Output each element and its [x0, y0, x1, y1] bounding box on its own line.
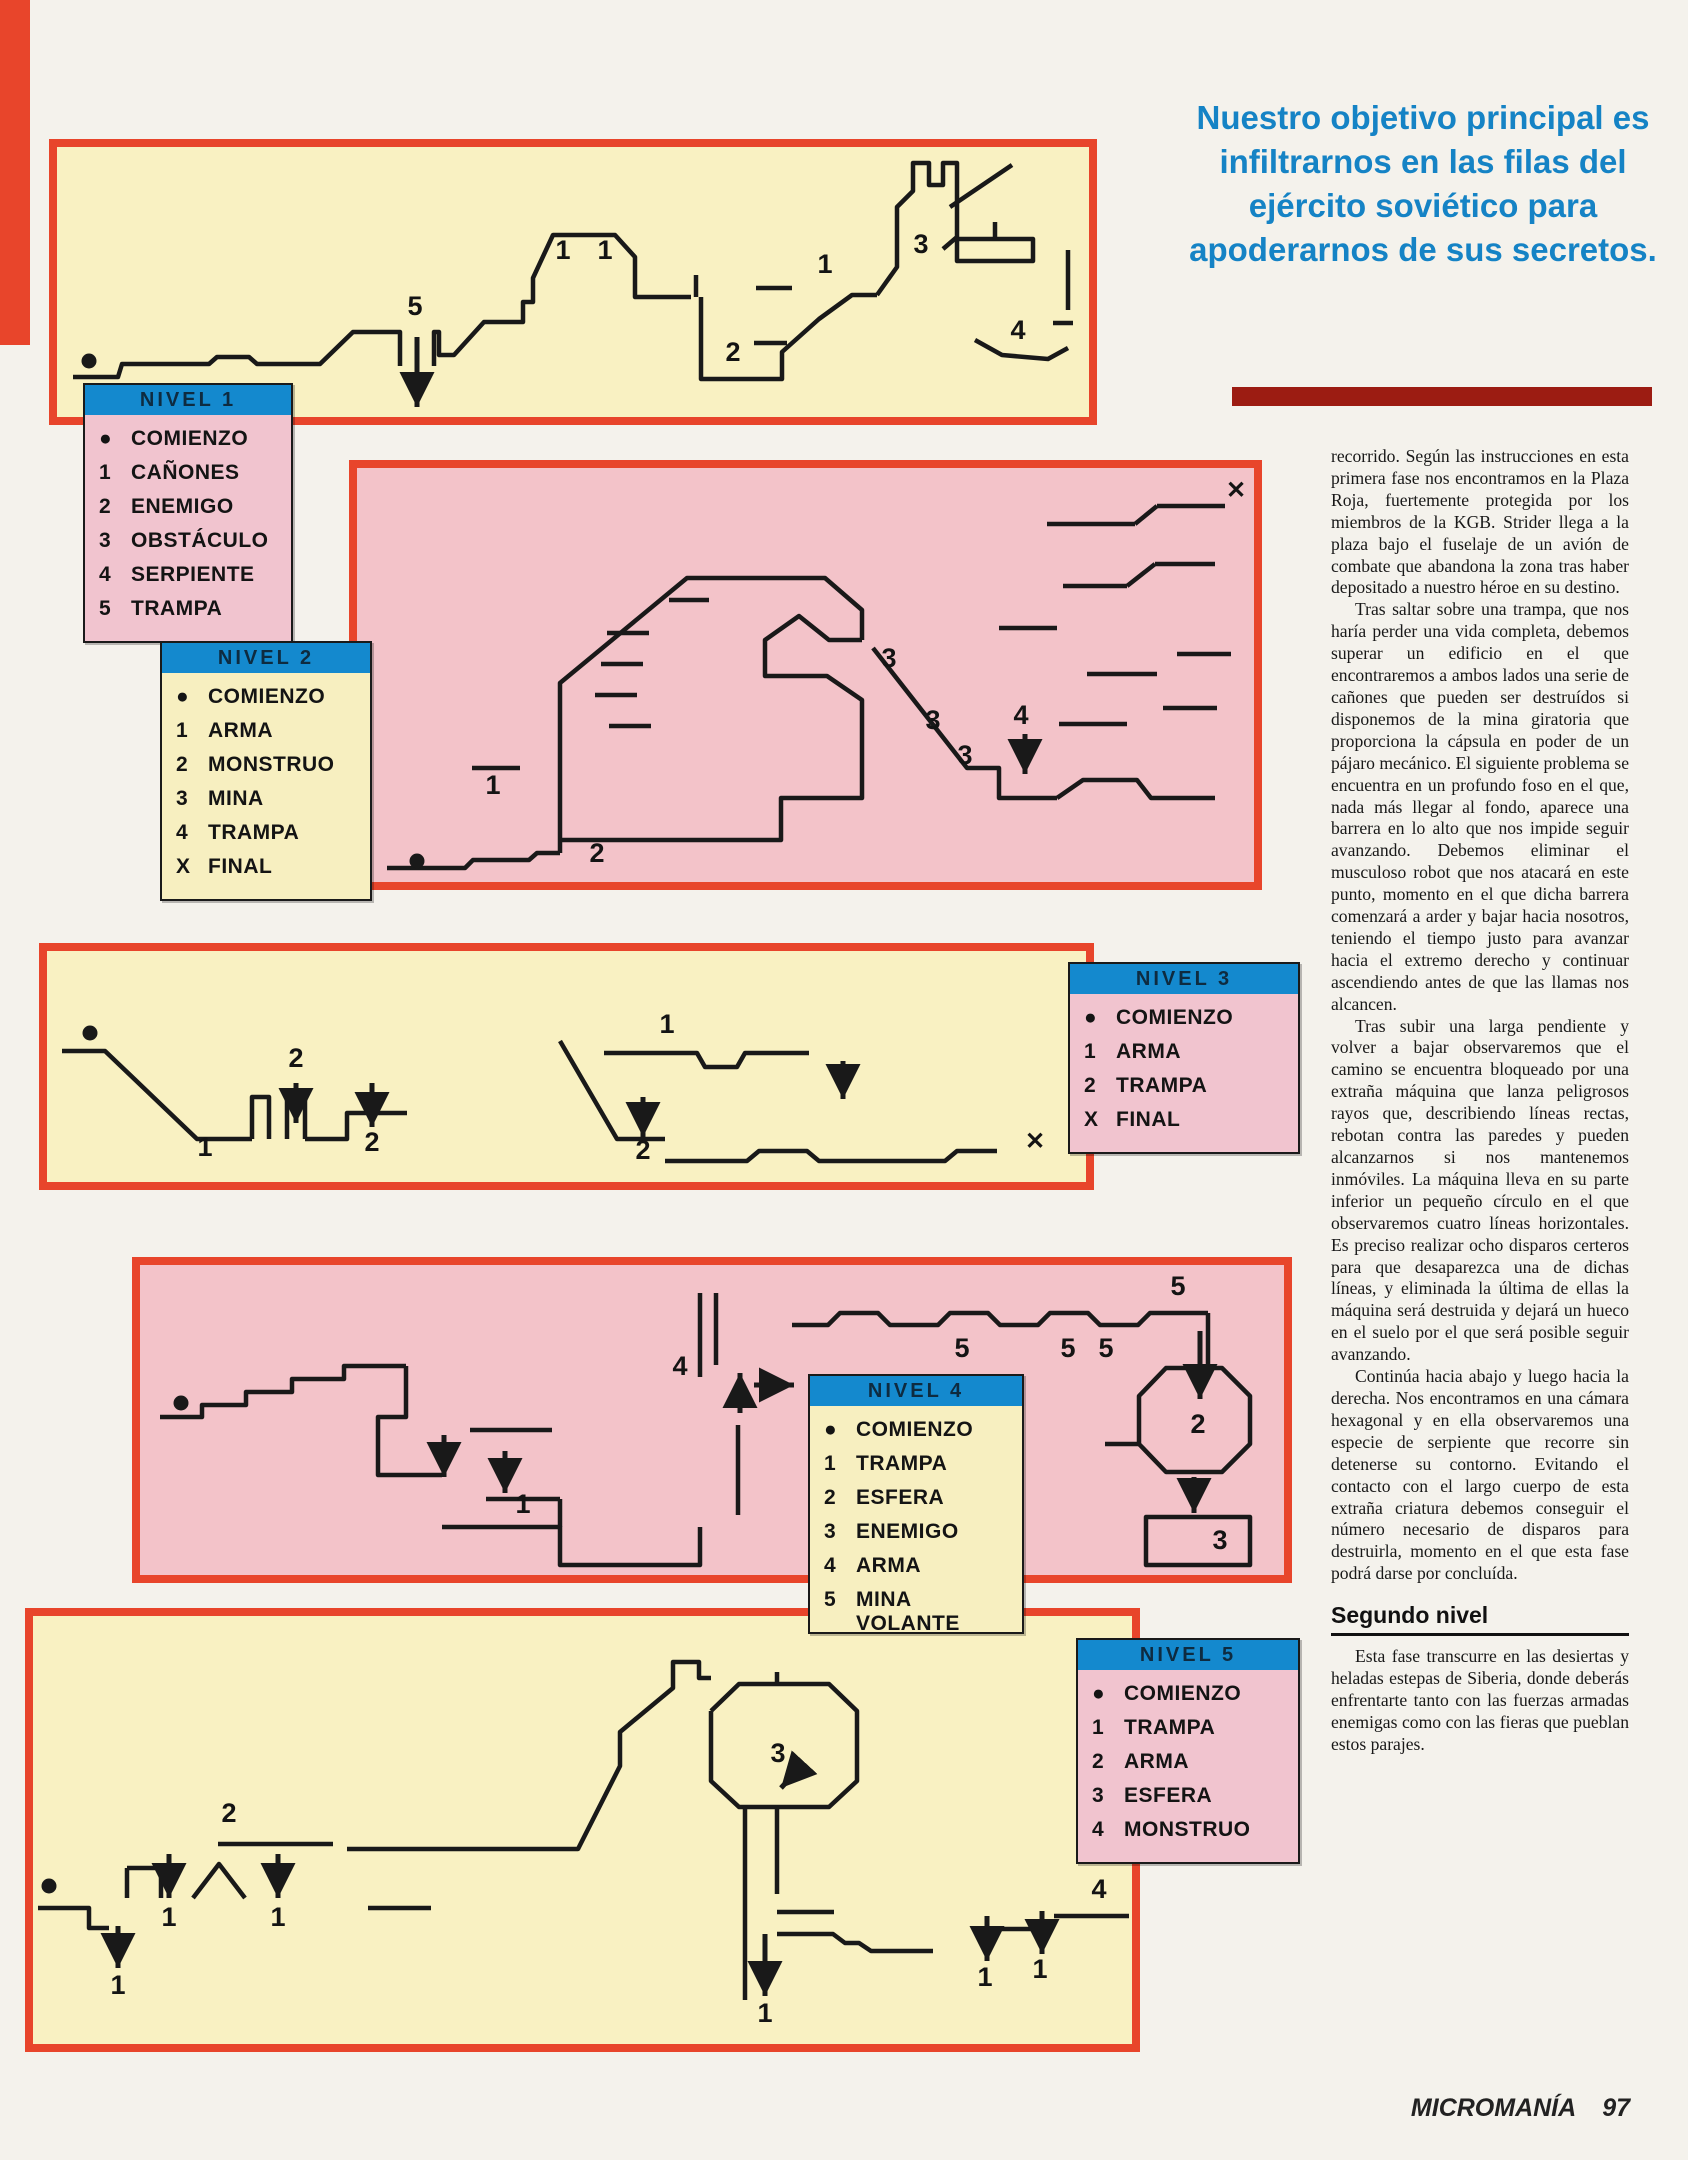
map-number-label: 5 — [1098, 1333, 1113, 1363]
legend-item: ●COMIENZO — [1084, 1006, 1288, 1040]
start-dot-icon — [410, 854, 425, 869]
legend-item-label: COMIENZO — [131, 427, 248, 451]
legend-item-key: 1 — [176, 719, 208, 743]
legend-item-label: MINA — [208, 787, 264, 811]
legend-item: 3ESFERA — [1092, 1784, 1288, 1818]
map-path — [777, 1934, 933, 1951]
map-number-label: 2 — [288, 1043, 303, 1073]
legend-item-label: FINAL — [1116, 1108, 1180, 1132]
legend-item-key: 4 — [1092, 1818, 1124, 1842]
legend-item: XFINAL — [176, 855, 360, 889]
nivel-5-map: 211131114 — [33, 1616, 1132, 2044]
legend-item: ●COMIENZO — [99, 427, 281, 461]
map-path — [127, 1868, 161, 1898]
map-number-label: 1 — [270, 1902, 285, 1932]
legend-item: 2ENEMIGO — [99, 495, 281, 529]
article-paragraph: recorrido. Según las instrucciones en es… — [1331, 446, 1629, 599]
map-number-label: 1 — [161, 1902, 176, 1932]
start-dot-icon — [42, 1879, 57, 1894]
legend-item-key: 5 — [99, 597, 131, 621]
legend-item-label: TRAMPA — [1116, 1074, 1207, 1098]
map-number-label: 3 — [1212, 1525, 1227, 1555]
legend-item-label: TRAMPA — [1124, 1716, 1215, 1740]
map-path — [711, 1684, 777, 1711]
page-edge-red-strip — [0, 0, 30, 345]
map-final-mark: ✕ — [1025, 1128, 1045, 1155]
map-number-label: 2 — [725, 337, 740, 367]
legend-item-label: ARMA — [856, 1554, 921, 1578]
legend-nivel-3: NIVEL 3 ●COMIENZO1ARMA2TRAMPAXFINAL — [1068, 962, 1300, 1154]
map-path — [533, 1662, 711, 1849]
map-number-label: 5 — [1060, 1333, 1075, 1363]
legend-nivel-1: NIVEL 1 ●COMIENZO1CAÑONES2ENEMIGO3OBSTÁC… — [83, 383, 293, 643]
legend-item-key: 3 — [99, 529, 131, 553]
legend-nivel-2-title: NIVEL 2 — [162, 643, 370, 673]
legend-nivel-3-items: ●COMIENZO1ARMA2TRAMPAXFINAL — [1070, 994, 1298, 1152]
legend-nivel-3-title: NIVEL 3 — [1070, 964, 1298, 994]
map-path — [378, 1366, 442, 1475]
map-number-label: 2 — [589, 838, 604, 868]
map-number-label: 1 — [555, 235, 570, 265]
legend-item-label: TRAMPA — [856, 1452, 947, 1476]
legend-item-label: MONSTRUO — [208, 753, 335, 777]
legend-nivel-4-items: ●COMIENZO1TRAMPA2ESFERA3ENEMIGO4ARMA5MIN… — [810, 1406, 1022, 1632]
legend-nivel-2-items: ●COMIENZO1ARMA2MONSTRUO3MINA4TRAMPAXFINA… — [162, 673, 370, 899]
headline-rule — [1232, 387, 1652, 406]
legend-item-key: 3 — [176, 787, 208, 811]
legend-item: 2ARMA — [1092, 1750, 1288, 1784]
map-path — [950, 165, 1012, 207]
legend-item-key: ● — [176, 685, 208, 709]
article-paragraph: Esta fase transcurre en las desiertas y … — [1331, 1646, 1629, 1756]
map-path — [73, 332, 400, 377]
legend-item: 2ESFERA — [824, 1486, 1012, 1520]
map-path — [604, 1053, 809, 1067]
map-path — [442, 1527, 700, 1565]
map-number-label: 1 — [817, 249, 832, 279]
legend-item: 2TRAMPA — [1084, 1074, 1288, 1108]
legend-item-key: 2 — [176, 753, 208, 777]
map-number-label: 3 — [925, 705, 940, 735]
legend-nivel-1-items: ●COMIENZO1CAÑONES2ENEMIGO3OBSTÁCULO4SERP… — [85, 415, 291, 641]
map-path — [193, 1864, 245, 1898]
legend-item-key: ● — [824, 1418, 856, 1442]
map-number-label: 1 — [197, 1132, 212, 1162]
legend-item-label: OBSTÁCULO — [131, 529, 269, 553]
legend-item: 1ARMA — [176, 719, 360, 753]
legend-item: 3OBSTÁCULO — [99, 529, 281, 563]
legend-item-key: 1 — [824, 1452, 856, 1476]
map-panel-nivel-4: 14555523 — [132, 1257, 1292, 1583]
map-path — [560, 578, 862, 853]
map-number-label: 2 — [635, 1135, 650, 1165]
map-number-label: 4 — [1091, 1874, 1106, 1904]
start-dot-icon — [82, 354, 97, 369]
map-panel-nivel-5: 211131114 — [25, 1608, 1140, 2052]
legend-item: 1TRAMPA — [824, 1452, 1012, 1486]
map-path — [38, 1908, 109, 1928]
legend-nivel-5-title: NIVEL 5 — [1078, 1640, 1298, 1670]
legend-item-label: ARMA — [208, 719, 273, 743]
legend-item: 4ARMA — [824, 1554, 1012, 1588]
legend-item-key: 4 — [99, 563, 131, 587]
map-path — [873, 648, 1057, 798]
legend-item-key: X — [176, 855, 208, 879]
map-number-label: 2 — [364, 1127, 379, 1157]
map-path — [252, 1097, 269, 1139]
legend-item-label: COMIENZO — [1124, 1682, 1241, 1706]
map-number-label: 5 — [407, 291, 422, 321]
magazine-brand: MICROMANÍA — [1411, 2094, 1576, 2122]
map-number-label: 1 — [659, 1009, 674, 1039]
map-number-label: 1 — [110, 1970, 125, 2000]
map-path — [1135, 506, 1157, 524]
legend-item-key: 1 — [1084, 1040, 1116, 1064]
page-footer: MICROMANÍA97 — [1300, 2094, 1630, 2123]
legend-item-label: ARMA — [1124, 1750, 1189, 1774]
map-number-label: 1 — [515, 1489, 530, 1519]
legend-item-key: ● — [1092, 1682, 1124, 1706]
legend-item: 5MINA VOLANTE — [824, 1588, 1012, 1622]
legend-item-label: MONSTRUO — [1124, 1818, 1251, 1842]
map-number-label: 3 — [770, 1738, 785, 1768]
map-number-label: 1 — [1032, 1954, 1047, 1984]
legend-item-key: ● — [99, 427, 131, 451]
legend-item-key: 2 — [1084, 1074, 1116, 1098]
article-paragraph: Tras subir una larga pendiente y volver … — [1331, 1016, 1629, 1367]
article-paragraph: Tras saltar sobre una trampa, que nos ha… — [1331, 599, 1629, 1015]
map-number-label: 1 — [977, 1962, 992, 1992]
legend-item: 4SERPIENTE — [99, 563, 281, 597]
legend-nivel-5-items: ●COMIENZO1TRAMPA2ARMA3ESFERA4MONSTRUO — [1078, 1670, 1298, 1862]
map-path — [1146, 1517, 1250, 1565]
map-number-label: 5 — [954, 1333, 969, 1363]
legend-nivel-2: NIVEL 2 ●COMIENZO1ARMA2MONSTRUO3MINA4TRA… — [160, 641, 372, 901]
legend-nivel-5: NIVEL 5 ●COMIENZO1TRAMPA2ARMA3ESFERA4MON… — [1076, 1638, 1300, 1864]
legend-item-label: ENEMIGO — [856, 1520, 959, 1544]
magazine-page: { "colors":{ "panel_border_red":"#e8452b… — [0, 0, 1688, 2160]
map-number-label: 2 — [221, 1798, 236, 1828]
legend-item-key: 4 — [176, 821, 208, 845]
map-path — [665, 1151, 997, 1161]
start-dot-icon — [83, 1026, 98, 1041]
map-number-label: 2 — [1190, 1409, 1205, 1439]
nivel-1-map: 5112134 — [57, 147, 1089, 417]
article-column: recorrido. Según las instrucciones en es… — [1331, 446, 1629, 1756]
legend-item-label: SERPIENTE — [131, 563, 255, 587]
legend-item: 2MONSTRUO — [176, 753, 360, 787]
legend-item: 4MONSTRUO — [1092, 1818, 1288, 1852]
legend-item: XFINAL — [1084, 1108, 1288, 1142]
legend-item-label: TRAMPA — [208, 821, 299, 845]
map-number-label: 3 — [957, 740, 972, 770]
nivel-3-map: 21212✕ — [47, 951, 1086, 1182]
legend-item-key: 1 — [1092, 1716, 1124, 1740]
legend-item: ●COMIENZO — [176, 685, 360, 719]
article-paragraph: Continúa hacia abajo y luego hacia la de… — [1331, 1366, 1629, 1585]
map-number-label: 1 — [597, 235, 612, 265]
legend-item: ●COMIENZO — [824, 1418, 1012, 1452]
legend-item: 3MINA — [176, 787, 360, 821]
map-number-label: 4 — [1010, 315, 1025, 345]
legend-item-key: X — [1084, 1108, 1116, 1132]
map-number-label: 3 — [881, 643, 896, 673]
map-number-label: 1 — [485, 770, 500, 800]
page-number: 97 — [1602, 2094, 1630, 2122]
legend-item-key: 3 — [1092, 1784, 1124, 1808]
legend-item-key: 2 — [824, 1486, 856, 1510]
legend-item: 4TRAMPA — [176, 821, 360, 855]
legend-item-label: COMIENZO — [1116, 1006, 1233, 1030]
map-panel-nivel-2: 333412✕ — [349, 460, 1262, 890]
map-final-mark: ✕ — [1226, 477, 1246, 504]
legend-item-label: ESFERA — [856, 1486, 944, 1510]
map-path — [560, 616, 862, 840]
map-number-label: 1 — [757, 1998, 772, 2028]
legend-item: ●COMIENZO — [1092, 1682, 1288, 1716]
legend-item-key: 3 — [824, 1520, 856, 1544]
legend-item-label: CAÑONES — [131, 461, 240, 485]
map-panel-nivel-3: 21212✕ — [39, 943, 1094, 1190]
legend-nivel-1-title: NIVEL 1 — [85, 385, 291, 415]
legend-item-label: ARMA — [1116, 1040, 1181, 1064]
legend-item: 1CAÑONES — [99, 461, 281, 495]
map-path — [957, 239, 1033, 261]
map-path — [1057, 780, 1215, 798]
article-subhead: Segundo nivel — [1331, 1589, 1629, 1636]
map-path — [560, 1041, 665, 1139]
map-number-label: 3 — [913, 229, 928, 259]
legend-item-label: ENEMIGO — [131, 495, 234, 519]
nivel-4-map: 14555523 — [140, 1265, 1284, 1575]
map-path — [62, 1051, 252, 1139]
map-path — [1127, 564, 1155, 586]
legend-item: 1TRAMPA — [1092, 1716, 1288, 1750]
page-headline: Nuestro objetivo principal es infiltrarn… — [1186, 96, 1660, 272]
legend-item: 1ARMA — [1084, 1040, 1288, 1074]
legend-nivel-4: NIVEL 4 ●COMIENZO1TRAMPA2ESFERA3ENEMIGO4… — [808, 1374, 1024, 1634]
map-path — [160, 1366, 406, 1417]
map-number-label: 4 — [1013, 700, 1028, 730]
legend-item-key: ● — [1084, 1006, 1116, 1030]
legend-item: 5TRAMPA — [99, 597, 281, 631]
legend-item-label: ESFERA — [1124, 1784, 1212, 1808]
legend-item-key: 4 — [824, 1554, 856, 1578]
legend-item-label: MINA VOLANTE — [856, 1588, 1012, 1636]
legend-item-key: 2 — [99, 495, 131, 519]
legend-item-label: COMIENZO — [856, 1418, 973, 1442]
legend-item-key: 2 — [1092, 1750, 1124, 1774]
legend-item-label: TRAMPA — [131, 597, 222, 621]
legend-item-key: 1 — [99, 461, 131, 485]
map-number-label: 5 — [1170, 1271, 1185, 1301]
map-number-label: 4 — [672, 1351, 687, 1381]
legend-nivel-4-title: NIVEL 4 — [810, 1376, 1022, 1406]
legend-item-key: 5 — [824, 1588, 856, 1612]
map-path — [792, 1313, 1208, 1325]
legend-item: 3ENEMIGO — [824, 1520, 1012, 1554]
nivel-2-map: 333412✕ — [357, 468, 1254, 882]
legend-item-label: COMIENZO — [208, 685, 325, 709]
start-dot-icon — [174, 1396, 189, 1411]
map-path — [305, 1113, 407, 1139]
legend-item-label: FINAL — [208, 855, 272, 879]
